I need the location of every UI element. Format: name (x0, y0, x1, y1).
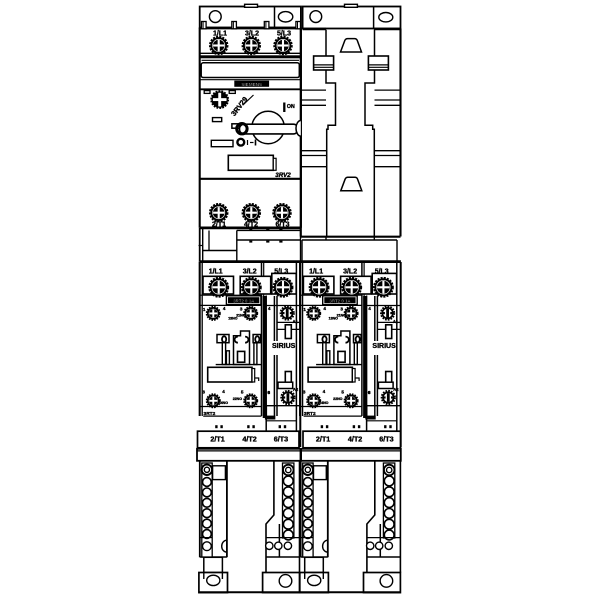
svg-text:6/T3: 6/T3 (379, 435, 393, 444)
svg-text:2/T1: 2/T1 (316, 435, 330, 444)
svg-text:22NO: 22NO (233, 397, 243, 401)
svg-text:14NO: 14NO (219, 401, 229, 405)
svg-text:SIRIUS: SIRIUS (272, 343, 296, 350)
svg-text:6/T3: 6/T3 (274, 435, 288, 444)
svg-text:21NC: 21NC (236, 314, 246, 318)
svg-text:SIRIUS: SIRIUS (372, 343, 396, 350)
svg-text:4: 4 (223, 306, 226, 311)
svg-text:A2: A2 (393, 387, 399, 392)
svg-text:3: 3 (340, 307, 343, 312)
svg-text:A1: A1 (293, 319, 299, 324)
svg-text:4/T2: 4/T2 (242, 435, 256, 444)
svg-text:14NO: 14NO (319, 401, 329, 405)
svg-text:A1: A1 (393, 319, 399, 324)
svg-text:A2: A2 (293, 387, 299, 392)
svg-text:3/L2: 3/L2 (343, 268, 357, 275)
svg-text:3RT2 0 1A: 3RT2 0 1A (329, 298, 351, 303)
svg-text:21NC: 21NC (337, 314, 347, 318)
svg-text:5: 5 (341, 390, 344, 395)
svg-text:3/L2: 3/L2 (243, 268, 257, 275)
svg-text:1: 1 (203, 307, 206, 312)
svg-text:3RT2 0 1A: 3RT2 0 1A (233, 298, 255, 303)
svg-text:5: 5 (241, 390, 244, 395)
svg-text:1/L1: 1/L1 (209, 268, 223, 275)
svg-text:3: 3 (202, 390, 205, 395)
svg-text:1/L1: 1/L1 (309, 268, 323, 275)
svg-text:4/T2: 4/T2 (348, 435, 362, 444)
svg-text:3: 3 (240, 307, 243, 312)
svg-text:2/T1: 2/T1 (210, 435, 224, 444)
svg-text:1: 1 (303, 307, 306, 312)
svg-text:4: 4 (323, 306, 326, 311)
svg-text:4: 4 (323, 389, 326, 394)
svg-text:22NO: 22NO (333, 397, 343, 401)
svg-text:4: 4 (222, 389, 225, 394)
svg-text:SIEMENS: SIEMENS (241, 82, 262, 87)
svg-text:ON: ON (287, 104, 295, 110)
svg-text:3: 3 (303, 390, 306, 395)
